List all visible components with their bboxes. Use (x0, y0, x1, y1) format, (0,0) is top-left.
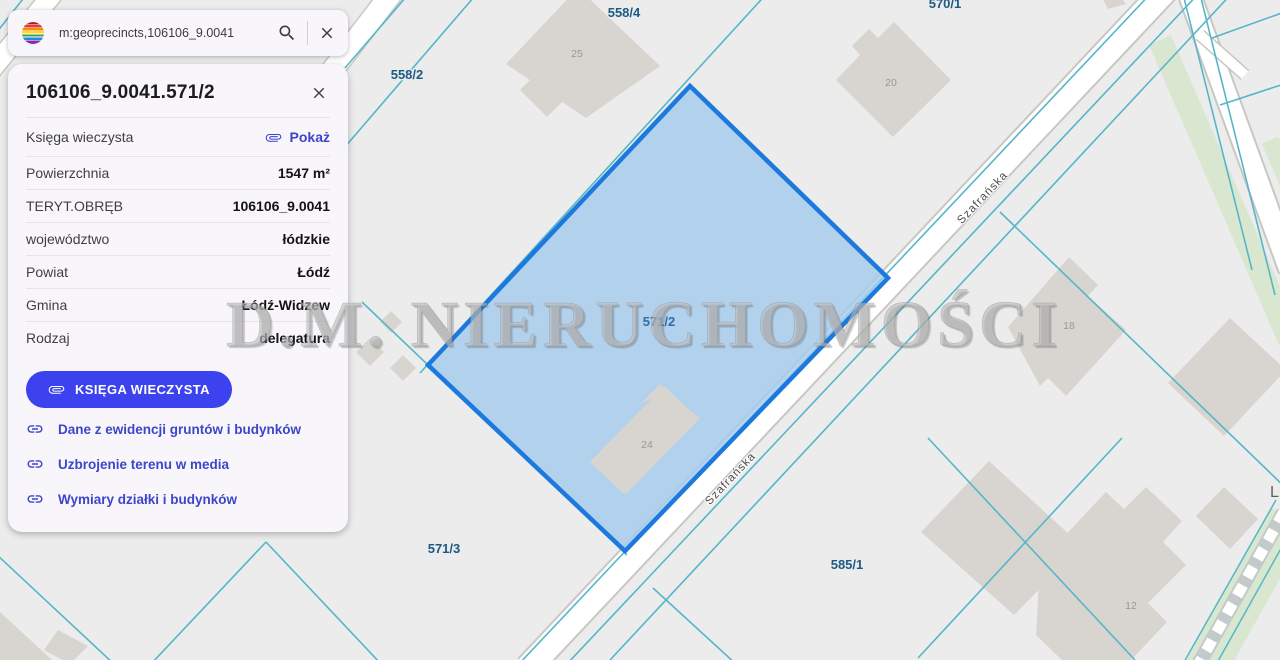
link-uzbrojenie-terenu[interactable]: Uzbrojenie terenu w media (26, 455, 330, 473)
row-ksiega-wieczysta: Księga wieczysta Pokaż (26, 117, 330, 156)
pokaz-link[interactable]: Pokaż (265, 129, 330, 146)
row-value: łódzkie (283, 231, 330, 247)
parcel-label: 570/1 (929, 0, 962, 11)
app-logo-icon (22, 22, 44, 44)
building-label: 25 (571, 48, 583, 60)
parcel-label: 571/3 (428, 541, 461, 556)
row-label: województwo (26, 231, 109, 247)
link-wymiary-dzialki[interactable]: Wymiary działki i budynków (26, 490, 330, 508)
row-powierzchnia: Powierzchnia 1547 m² (26, 156, 330, 189)
pokaz-label: Pokaż (290, 129, 330, 145)
paperclip-icon (265, 129, 282, 146)
link-dane-ewidencji[interactable]: Dane z ewidencji gruntów i budynków (26, 420, 330, 438)
link-label: Dane z ewidencji gruntów i budynków (58, 422, 301, 437)
row-label: Powiat (26, 264, 68, 280)
parcel-label: 558/2 (391, 67, 424, 82)
link-icon (26, 455, 44, 473)
link-label: Uzbrojenie terenu w media (58, 457, 229, 472)
row-gmina: Gmina Łódź-Widzew (26, 288, 330, 321)
row-label: Księga wieczysta (26, 129, 133, 145)
link-label: Wymiary działki i budynków (58, 492, 237, 507)
row-value: delegatura (259, 330, 330, 346)
row-wojewodztwo: województwo łódzkie (26, 222, 330, 255)
search-bar (8, 10, 348, 56)
parcel-label-selected: 571/2 (643, 314, 676, 329)
kw-button-label: KSIĘGA WIECZYSTA (75, 382, 210, 397)
row-rodzaj: Rodzaj delegatura (26, 321, 330, 354)
panel-title: 106106_9.0041.571/2 (26, 82, 215, 104)
search-clear-icon[interactable] (316, 22, 338, 44)
link-icon (26, 490, 44, 508)
search-divider (307, 21, 308, 45)
search-icon[interactable] (275, 21, 299, 45)
link-icon (26, 420, 44, 438)
row-teryt-obreb: TERYT.OBRĘB 106106_9.0041 (26, 189, 330, 222)
building-label: 24 (641, 439, 653, 451)
row-label: Powierzchnia (26, 165, 109, 181)
partial-label: L (1270, 484, 1279, 501)
panel-links: Dane z ewidencji gruntów i budynków Uzbr… (8, 416, 348, 522)
building-label: 12 (1125, 600, 1137, 612)
row-value: 106106_9.0041 (233, 198, 330, 214)
attribute-rows: Księga wieczysta Pokaż Powierzchnia 1547… (26, 117, 330, 354)
search-input[interactable] (57, 25, 275, 41)
parcel-label: 585/1 (831, 557, 864, 572)
parcel-label: 558/4 (608, 5, 641, 20)
panel-close-icon[interactable] (308, 82, 330, 104)
row-label: TERYT.OBRĘB (26, 198, 123, 214)
building-label: 20 (885, 77, 897, 89)
building-label: 18 (1063, 320, 1075, 332)
row-value: 1547 m² (278, 165, 330, 181)
row-label: Rodzaj (26, 330, 70, 346)
ksiega-wieczysta-button[interactable]: KSIĘGA WIECZYSTA (26, 371, 232, 408)
row-value: Łódź (297, 264, 330, 280)
row-label: Gmina (26, 297, 67, 313)
parcel-info-panel: 106106_9.0041.571/2 Księga wieczysta Pok… (8, 64, 348, 532)
row-value: Łódź-Widzew (241, 297, 330, 313)
paperclip-icon (48, 381, 65, 398)
row-powiat: Powiat Łódź (26, 255, 330, 288)
